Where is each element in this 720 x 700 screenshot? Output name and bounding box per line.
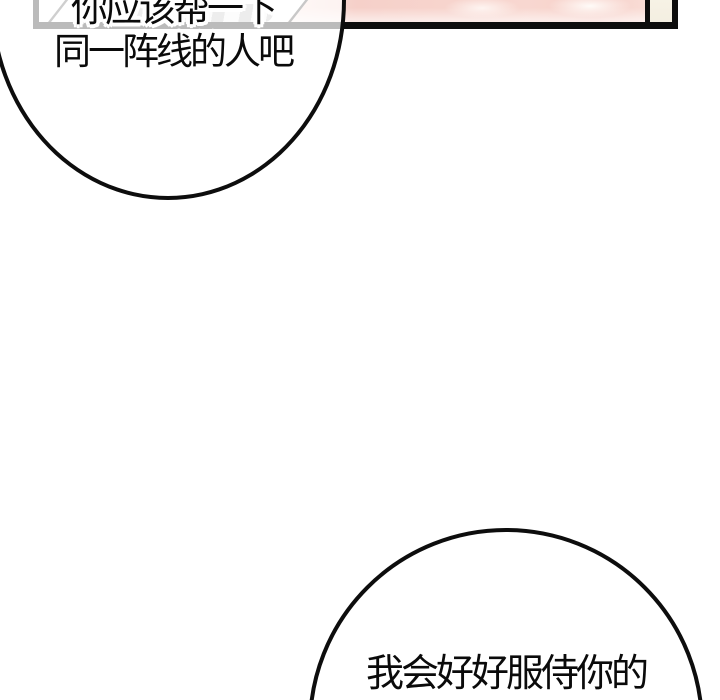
speech-bubble-bottom-text: 我会好好服侍你的 bbox=[308, 650, 704, 696]
speech-line-2: 同一阵线的人吧 bbox=[13, 30, 333, 73]
panel-cream-strip bbox=[650, 0, 672, 22]
speech-line-1: 你应该帮一下 bbox=[13, 0, 333, 30]
speech-bubble-top-text: 你应该帮一下 同一阵线的人吧 bbox=[13, 0, 333, 73]
comic-page: 你应该帮一下 同一阵线的人吧 我会好好服侍你的 bbox=[0, 0, 720, 700]
panel-right-border bbox=[672, 0, 678, 29]
panel-divider-line bbox=[645, 0, 650, 22]
